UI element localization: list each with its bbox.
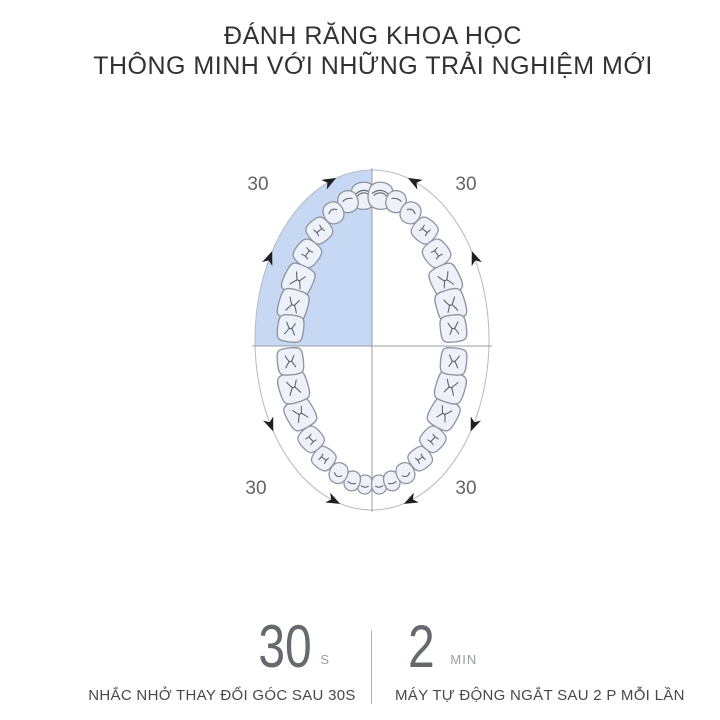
tooth-molar [276,314,305,344]
direction-arrow-icon [263,416,278,433]
stat-duration: 2MIN [408,620,668,680]
stat-duration-unit: MIN [450,633,477,687]
stat-duration-caption: MÁY TỰ ĐỘNG NGẮT SAU 2 P MỖI LẦN [395,687,640,704]
quadrant-time-label-bottom-right: 30 [455,478,476,499]
direction-arrow-icon [466,416,481,433]
stats-divider [371,630,372,704]
stat-interval-value: 30 [258,620,311,674]
direction-arrow-icon [401,493,418,509]
quadrant-time-label-top-left: 30 [247,174,268,195]
direction-arrow-icon [467,249,482,266]
stat-interval-caption: NHẮC NHỞ THAY ĐỔI GÓC SAU 30S [87,687,357,704]
quadrant-time-label-top-right: 30 [455,174,476,195]
quadrant-time-label-bottom-left: 30 [245,478,266,499]
direction-arrow-icon [325,493,342,509]
direction-arrow-icon [405,173,423,189]
tooth-molar [439,347,468,377]
tooth-molar [276,347,305,377]
stat-duration-value: 2 [408,620,435,674]
stat-interval: 30S [80,620,330,680]
teeth-quadrant-diagram: 30 30 30 30 [0,0,720,720]
tooth-molar [439,314,468,344]
stat-interval-unit: S [320,633,330,687]
